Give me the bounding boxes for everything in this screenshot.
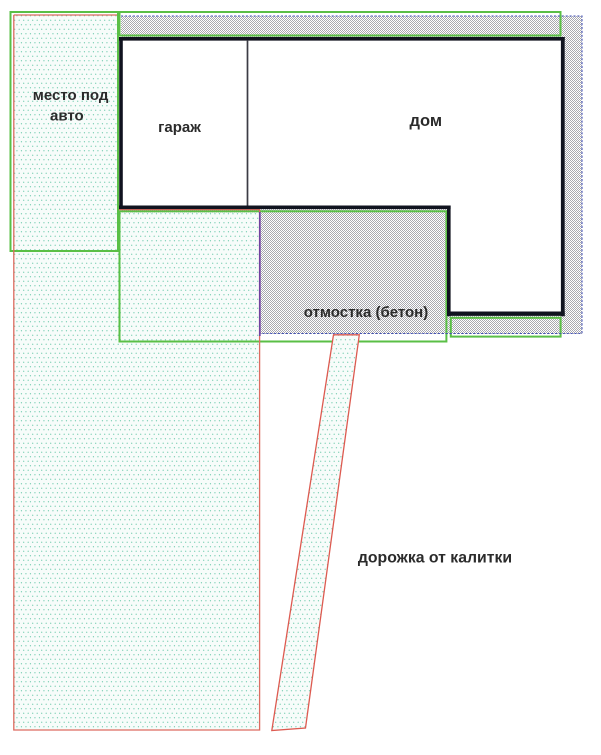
- svg-text:место под: место под: [33, 87, 109, 104]
- svg-text:гараж: гараж: [158, 119, 201, 136]
- svg-text:авто: авто: [50, 108, 84, 125]
- svg-text:дорожка от калитки: дорожка от калитки: [358, 550, 512, 567]
- svg-text:отмостка (бетон): отмостка (бетон): [304, 304, 428, 321]
- svg-text:дом: дом: [410, 112, 443, 130]
